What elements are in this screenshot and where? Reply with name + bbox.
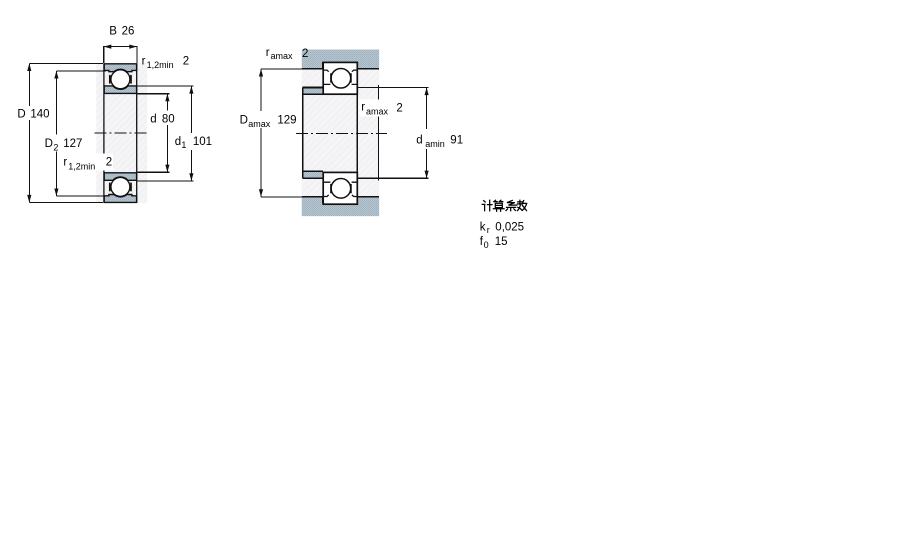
svg-text:D: D	[17, 109, 25, 121]
svg-text:2: 2	[106, 157, 112, 169]
svg-text:amax: amax	[271, 51, 294, 61]
svg-text:26: 26	[122, 25, 135, 37]
svg-text:r: r	[361, 102, 365, 114]
svg-text:2: 2	[302, 48, 308, 60]
svg-text:amax: amax	[248, 119, 271, 129]
svg-text:r: r	[142, 56, 146, 68]
svg-text:B: B	[109, 25, 117, 37]
svg-text:91: 91	[450, 135, 463, 147]
svg-text:127: 127	[63, 138, 82, 150]
svg-text:1: 1	[181, 140, 186, 150]
svg-text:amin: amin	[425, 139, 445, 149]
svg-text:129: 129	[277, 115, 296, 127]
svg-text:r: r	[266, 47, 270, 59]
svg-text:15: 15	[495, 236, 508, 248]
svg-text:r: r	[63, 157, 67, 169]
svg-text:140: 140	[30, 109, 49, 121]
svg-text:2: 2	[396, 103, 402, 115]
svg-text:2: 2	[183, 56, 189, 68]
svg-text:0,025: 0,025	[495, 221, 524, 233]
svg-text:80: 80	[162, 114, 175, 126]
svg-text:1,2min: 1,2min	[68, 161, 95, 171]
svg-text:k: k	[480, 221, 486, 233]
svg-text:d: d	[150, 114, 156, 126]
svg-text:2: 2	[53, 142, 58, 152]
svg-text:0: 0	[484, 240, 489, 250]
svg-text:D: D	[45, 138, 53, 150]
svg-text:101: 101	[193, 136, 212, 148]
svg-text:d: d	[175, 136, 181, 148]
svg-text:1,2min: 1,2min	[147, 60, 174, 70]
svg-text:amax: amax	[366, 106, 389, 116]
svg-text:D: D	[240, 115, 248, 127]
svg-text:r: r	[487, 225, 490, 235]
svg-text:d: d	[416, 135, 422, 147]
